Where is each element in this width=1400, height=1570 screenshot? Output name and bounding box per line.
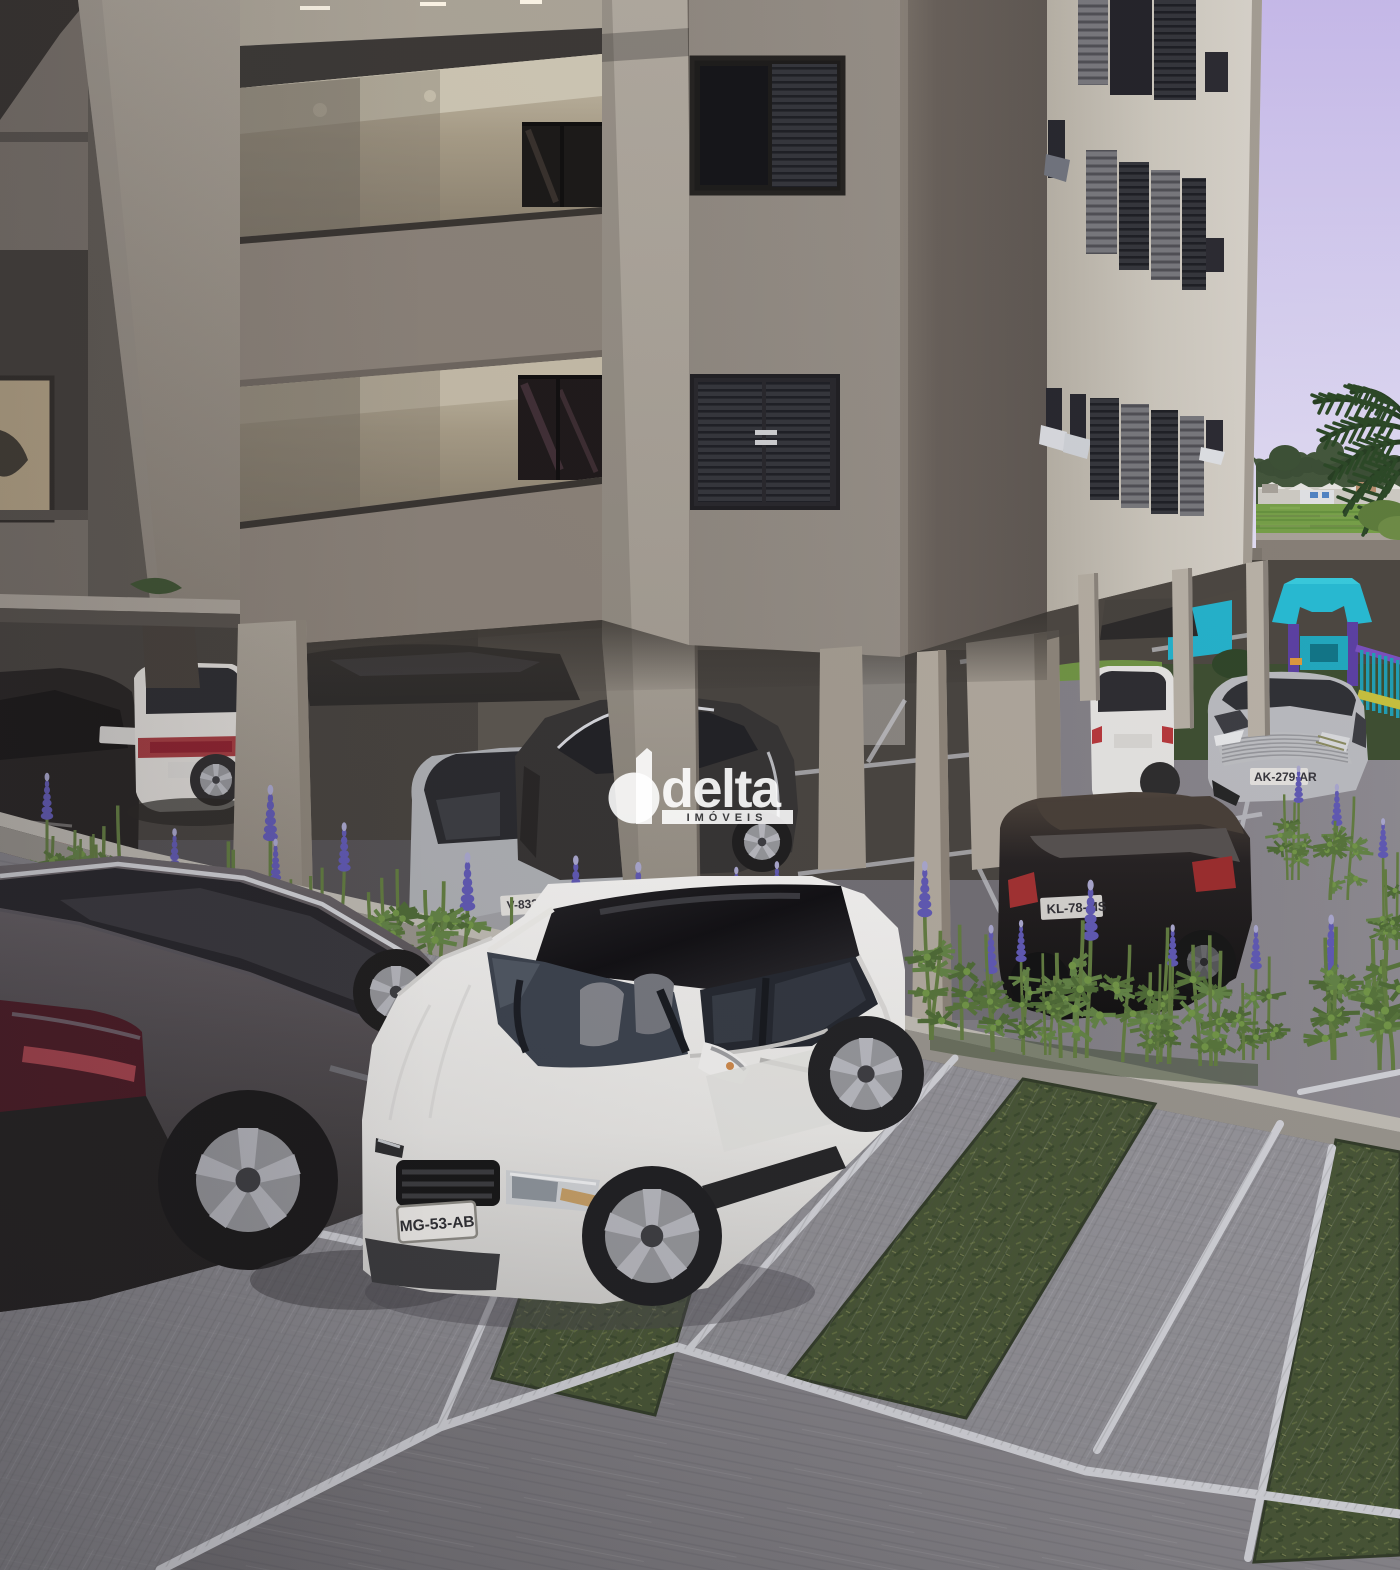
svg-text:IMÓVEIS: IMÓVEIS: [687, 811, 768, 824]
